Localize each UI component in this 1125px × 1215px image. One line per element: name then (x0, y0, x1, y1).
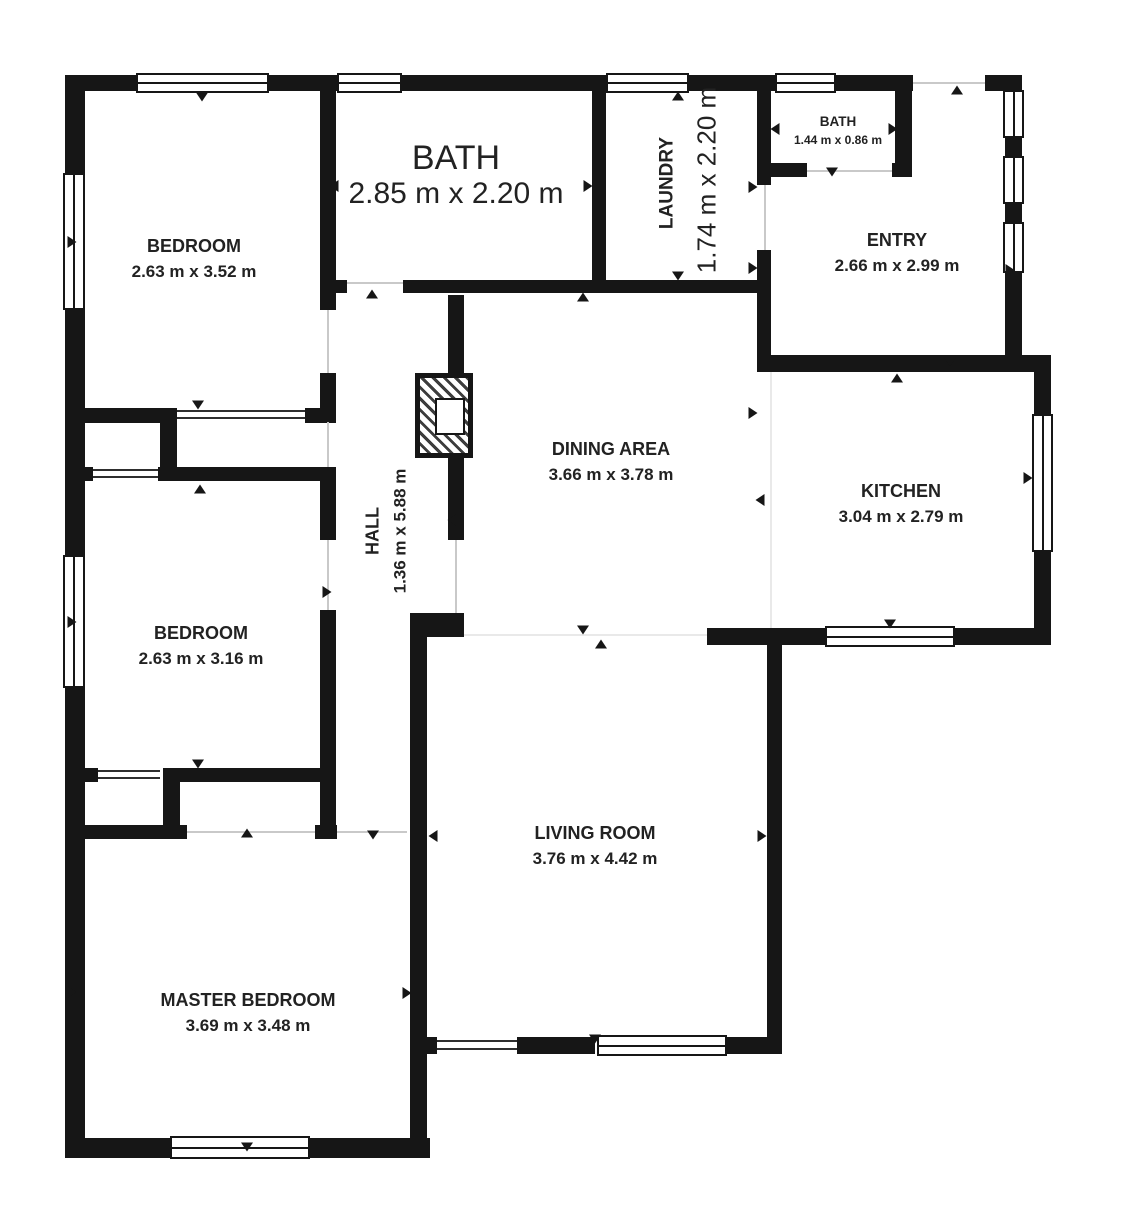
door-marker (330, 180, 339, 192)
opening-marker (891, 374, 903, 383)
door-marker-master (367, 831, 379, 840)
wall-smallbath-bottom (757, 163, 807, 177)
wall-exterior-right (1005, 138, 1022, 156)
room-dims-laundry: 1.74 m x 2.20 m (695, 87, 720, 273)
room-label-living-room: LIVING ROOM 3.76 m x 4.42 m (533, 821, 658, 871)
wall-smallbath-bottom (892, 163, 912, 177)
room-dims: 2.85 m x 2.20 m (348, 176, 563, 212)
window-entry-right-2 (1003, 156, 1024, 204)
door-marker (889, 123, 898, 135)
window-kitchen-bottom (825, 626, 955, 647)
window-marker (429, 830, 438, 842)
sliding-door-living-bottom (437, 1040, 517, 1050)
opening-marker (749, 407, 758, 419)
boundary-dining-kitchen (770, 372, 772, 628)
window-bath-top (337, 73, 402, 93)
room-name: ENTRY (835, 228, 960, 253)
room-name: BATH (794, 112, 882, 131)
room-name: BEDROOM (132, 234, 257, 259)
wall-bedroom1-right (320, 75, 336, 310)
window-marker (1024, 472, 1033, 484)
wall-entry-bottom (757, 355, 1034, 372)
window-marker (758, 830, 767, 842)
room-label-bedroom-2: BEDROOM 2.63 m x 3.16 m (139, 621, 264, 671)
window-entry-right-1 (1003, 90, 1024, 138)
wall-master-bottom (65, 1138, 170, 1158)
room-dims: 1.44 m x 0.86 m (794, 131, 882, 150)
opening-bath-door (347, 282, 403, 284)
wall-hall-right (448, 458, 464, 540)
room-label-bath-main: BATH 2.85 m x 2.20 m (348, 140, 563, 212)
window-smallbath-top (775, 73, 836, 93)
window-marker (403, 987, 412, 999)
door-marker-laundry-2 (672, 272, 684, 281)
window-marker (589, 1035, 601, 1044)
wall-bedroom2-bottom (85, 768, 98, 782)
wall-bath-laundry-bottom (403, 280, 757, 293)
opening-bedroom1-door (327, 310, 329, 373)
wall-exterior-right (1005, 204, 1022, 222)
wall-kitchen-bottom (707, 628, 825, 645)
wall-bedroom2-top (85, 467, 93, 481)
wall-bedroom1-bottom (305, 408, 336, 423)
room-label-laundry: LAUNDRY (655, 137, 680, 229)
window-kitchen-right (1032, 414, 1053, 552)
closet-doors-bedroom2-bottom (98, 770, 160, 779)
wall-living-bottom (727, 1037, 782, 1054)
room-name: LAUNDRY (657, 137, 678, 229)
wall-smallbath-right (895, 90, 912, 163)
wall-master-bottom (310, 1138, 430, 1158)
wall-hall-left (320, 467, 336, 540)
door-marker-bedroom2 (323, 586, 332, 598)
wall-exterior-right (1005, 273, 1022, 355)
room-name: MASTER BEDROOM (161, 988, 336, 1013)
room-label-entry: ENTRY 2.66 m x 2.99 m (835, 228, 960, 278)
room-name: KITCHEN (839, 479, 964, 504)
window-marker (1006, 264, 1015, 276)
wall-hall-left (320, 610, 336, 839)
wall-master-top (65, 825, 187, 839)
opening-marker (595, 640, 607, 649)
floor-plan: BEDROOM 2.63 m x 3.52 m BATH 2.85 m x 2.… (0, 0, 1125, 1215)
window-marker (884, 620, 896, 629)
room-dims: 3.66 m x 3.78 m (549, 462, 674, 487)
closet-doors-bedroom2-top (93, 469, 158, 478)
door-marker (584, 180, 593, 192)
room-label-hall: HALL (361, 507, 386, 555)
wall-exterior-right (1005, 75, 1022, 90)
opening-hall-dining-door (455, 540, 457, 613)
room-label-bath-small: BATH 1.44 m x 0.86 m (794, 112, 882, 150)
wall-top (65, 75, 136, 91)
wall-master-top (315, 825, 337, 839)
wall-top (402, 75, 606, 91)
closet-marker-bedroom1 (192, 401, 204, 410)
room-name: DINING AREA (549, 437, 674, 462)
room-dims-hall: 1.36 m x 5.88 m (388, 469, 413, 594)
wall-kitchen-right (1034, 372, 1051, 414)
window-marker (196, 93, 208, 102)
wall-entry-left (757, 250, 771, 372)
wall-master-right (410, 613, 427, 1158)
door-marker (749, 262, 758, 274)
room-name: HALL (363, 507, 383, 555)
door-marker-entry (951, 86, 963, 95)
room-dims: 2.66 m x 2.99 m (835, 253, 960, 278)
closet-doors-bedroom1 (177, 410, 305, 419)
window-master-bottom (170, 1136, 310, 1159)
closet-marker (192, 760, 204, 769)
wall-hall-right (448, 295, 464, 373)
door-marker-smallbath (826, 168, 838, 177)
window-marker (68, 986, 77, 998)
room-label-master-bedroom: MASTER BEDROOM 3.69 m x 3.48 m (161, 988, 336, 1038)
wall-bath-laundry-divider (592, 90, 606, 280)
opening-marker (756, 494, 765, 506)
opening-laundry-entry-door (764, 185, 766, 250)
door-marker-bath (366, 290, 378, 299)
room-dims: 1.36 m x 5.88 m (391, 469, 410, 594)
wall-bath-bottom (332, 280, 347, 293)
door-marker-dining (448, 514, 457, 526)
wall-living-right (767, 628, 782, 1054)
room-label-kitchen: KITCHEN 3.04 m x 2.79 m (839, 479, 964, 529)
wall-living-bottom (517, 1037, 595, 1054)
opening-hall-closet (327, 422, 329, 467)
fireplace (415, 373, 473, 458)
room-name: LIVING ROOM (533, 821, 658, 846)
opening-marker (944, 358, 956, 367)
wall-kitchen-bottom (955, 628, 1051, 645)
window-living-bottom (597, 1035, 727, 1056)
wall-living-bottom (410, 1037, 437, 1054)
room-label-dining-area: DINING AREA 3.66 m x 3.78 m (549, 437, 674, 487)
wall-bedroom2-top (158, 467, 320, 481)
room-dims: 2.63 m x 3.52 m (132, 259, 257, 284)
room-dims: 3.04 m x 2.79 m (839, 504, 964, 529)
window-marker (68, 616, 77, 628)
room-dims: 3.69 m x 3.48 m (161, 1013, 336, 1038)
opening-entry-door (913, 82, 985, 84)
wall-top (836, 75, 913, 91)
room-dims: 1.74 m x 2.20 m (692, 87, 722, 273)
window-laundry-top (606, 73, 689, 93)
room-dims: 3.76 m x 4.42 m (533, 846, 658, 871)
wall-closet-divider (163, 768, 180, 827)
wall-bedroom2-bottom (180, 768, 336, 782)
window-bedroom1-top (136, 73, 269, 93)
door-marker (771, 123, 780, 135)
room-label-bedroom-1: BEDROOM 2.63 m x 3.52 m (132, 234, 257, 284)
opening-bedroom2-door (327, 540, 329, 610)
closet-marker-bedroom2 (194, 485, 206, 494)
door-marker-master-nook (241, 829, 253, 838)
opening-smallbath-door (807, 170, 892, 172)
room-name: BATH (348, 140, 563, 176)
room-name: BEDROOM (139, 621, 264, 646)
window-marker (672, 92, 684, 101)
window-marker (68, 236, 77, 248)
door-marker (577, 293, 589, 302)
room-dims: 2.63 m x 3.16 m (139, 646, 264, 671)
door-marker-laundry (749, 181, 758, 193)
window-marker (241, 1143, 253, 1152)
fireplace-firebox (435, 398, 465, 435)
opening-marker (577, 626, 589, 635)
